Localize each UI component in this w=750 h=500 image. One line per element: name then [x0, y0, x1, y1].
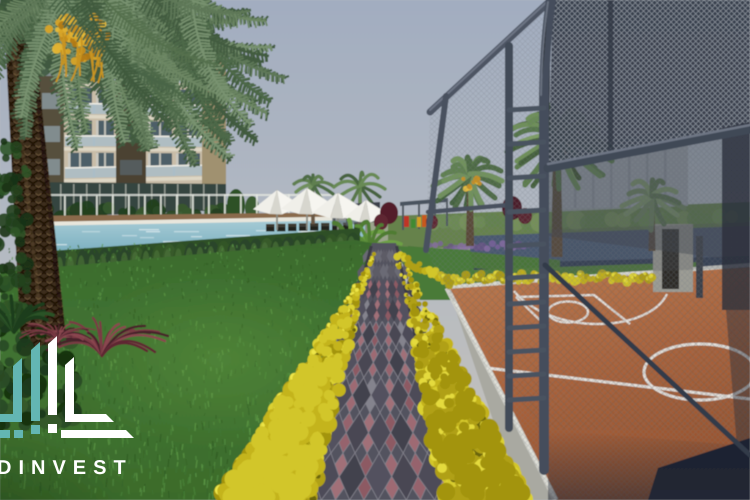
svg-text:DINVEST: DINVEST — [0, 457, 133, 479]
